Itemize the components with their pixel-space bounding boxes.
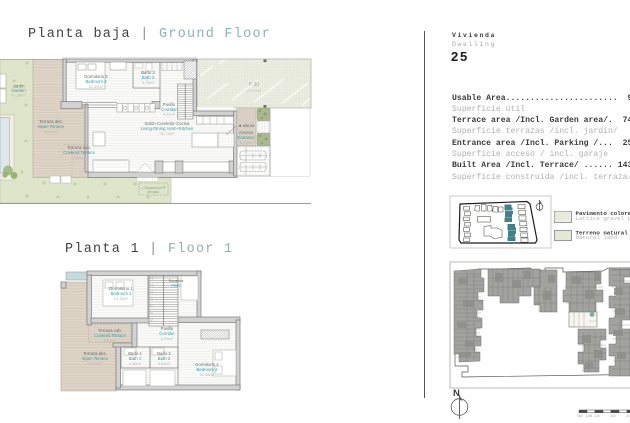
svg-text:3,31m²: 3,31m² bbox=[163, 112, 176, 117]
svg-text:Stairs: Stairs bbox=[171, 284, 181, 288]
svg-text:1.00: 1.00 bbox=[586, 414, 593, 418]
svg-text:41,38m²: 41,38m² bbox=[11, 93, 26, 98]
svg-text:Lattice gravel pavement: Lattice gravel pavement bbox=[576, 215, 630, 222]
svg-text:privada: privada bbox=[147, 190, 158, 194]
svg-text:30,73m²: 30,73m² bbox=[160, 131, 175, 136]
svg-text:Natural land: Natural land bbox=[576, 234, 618, 241]
svg-text:9,97m²: 9,97m² bbox=[104, 338, 117, 343]
svg-text:11,08m²: 11,08m² bbox=[200, 372, 215, 377]
svg-text:2.0: 2.0 bbox=[611, 414, 616, 418]
svg-text:8,29m²: 8,29m² bbox=[240, 140, 253, 145]
svg-text:14,32m²: 14,32m² bbox=[114, 296, 129, 301]
svg-text:44,94m²: 44,94m² bbox=[88, 361, 103, 366]
svg-text:Escalera: Escalera bbox=[169, 279, 185, 283]
svg-text:4,36m²: 4,36m² bbox=[129, 361, 142, 366]
svg-text:3,75m²: 3,75m² bbox=[142, 80, 155, 85]
svg-text:3,89m²: 3,89m² bbox=[158, 361, 171, 366]
svg-text:11,09m²: 11,09m² bbox=[89, 84, 104, 89]
svg-text:3,29m²: 3,29m² bbox=[161, 336, 174, 341]
svg-text:0.0: 0.0 bbox=[578, 414, 583, 418]
svg-text:◄ 400.34: ◄ 400.34 bbox=[238, 124, 254, 128]
svg-text:2.5: 2.5 bbox=[627, 414, 630, 418]
svg-text:2,69m²: 2,69m² bbox=[73, 155, 86, 160]
svg-text:1.5: 1.5 bbox=[595, 414, 600, 418]
svg-text:11,04m²: 11,04m² bbox=[44, 129, 59, 134]
svg-text:20,00m²: 20,00m² bbox=[247, 88, 262, 93]
svg-text:N: N bbox=[453, 388, 460, 399]
